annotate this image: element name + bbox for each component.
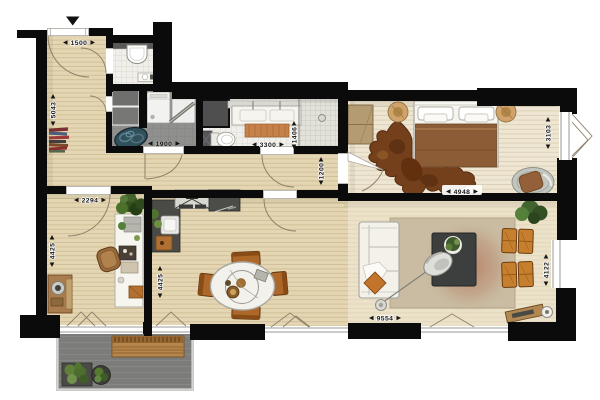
svg-text:1406: 1406 xyxy=(292,127,299,144)
svg-text:5043: 5043 xyxy=(51,102,58,119)
svg-text:4122: 4122 xyxy=(544,262,551,279)
svg-text:2294: 2294 xyxy=(82,198,99,205)
svg-text:3103: 3103 xyxy=(546,125,553,142)
svg-text:4425: 4425 xyxy=(158,274,165,291)
svg-text:1900: 1900 xyxy=(156,141,173,148)
svg-text:4948: 4948 xyxy=(454,189,471,196)
svg-text:3300: 3300 xyxy=(260,142,277,149)
svg-text:1200: 1200 xyxy=(319,163,326,180)
svg-text:9554: 9554 xyxy=(377,316,394,323)
svg-text:1500: 1500 xyxy=(71,40,88,47)
svg-text:4425: 4425 xyxy=(50,243,57,260)
